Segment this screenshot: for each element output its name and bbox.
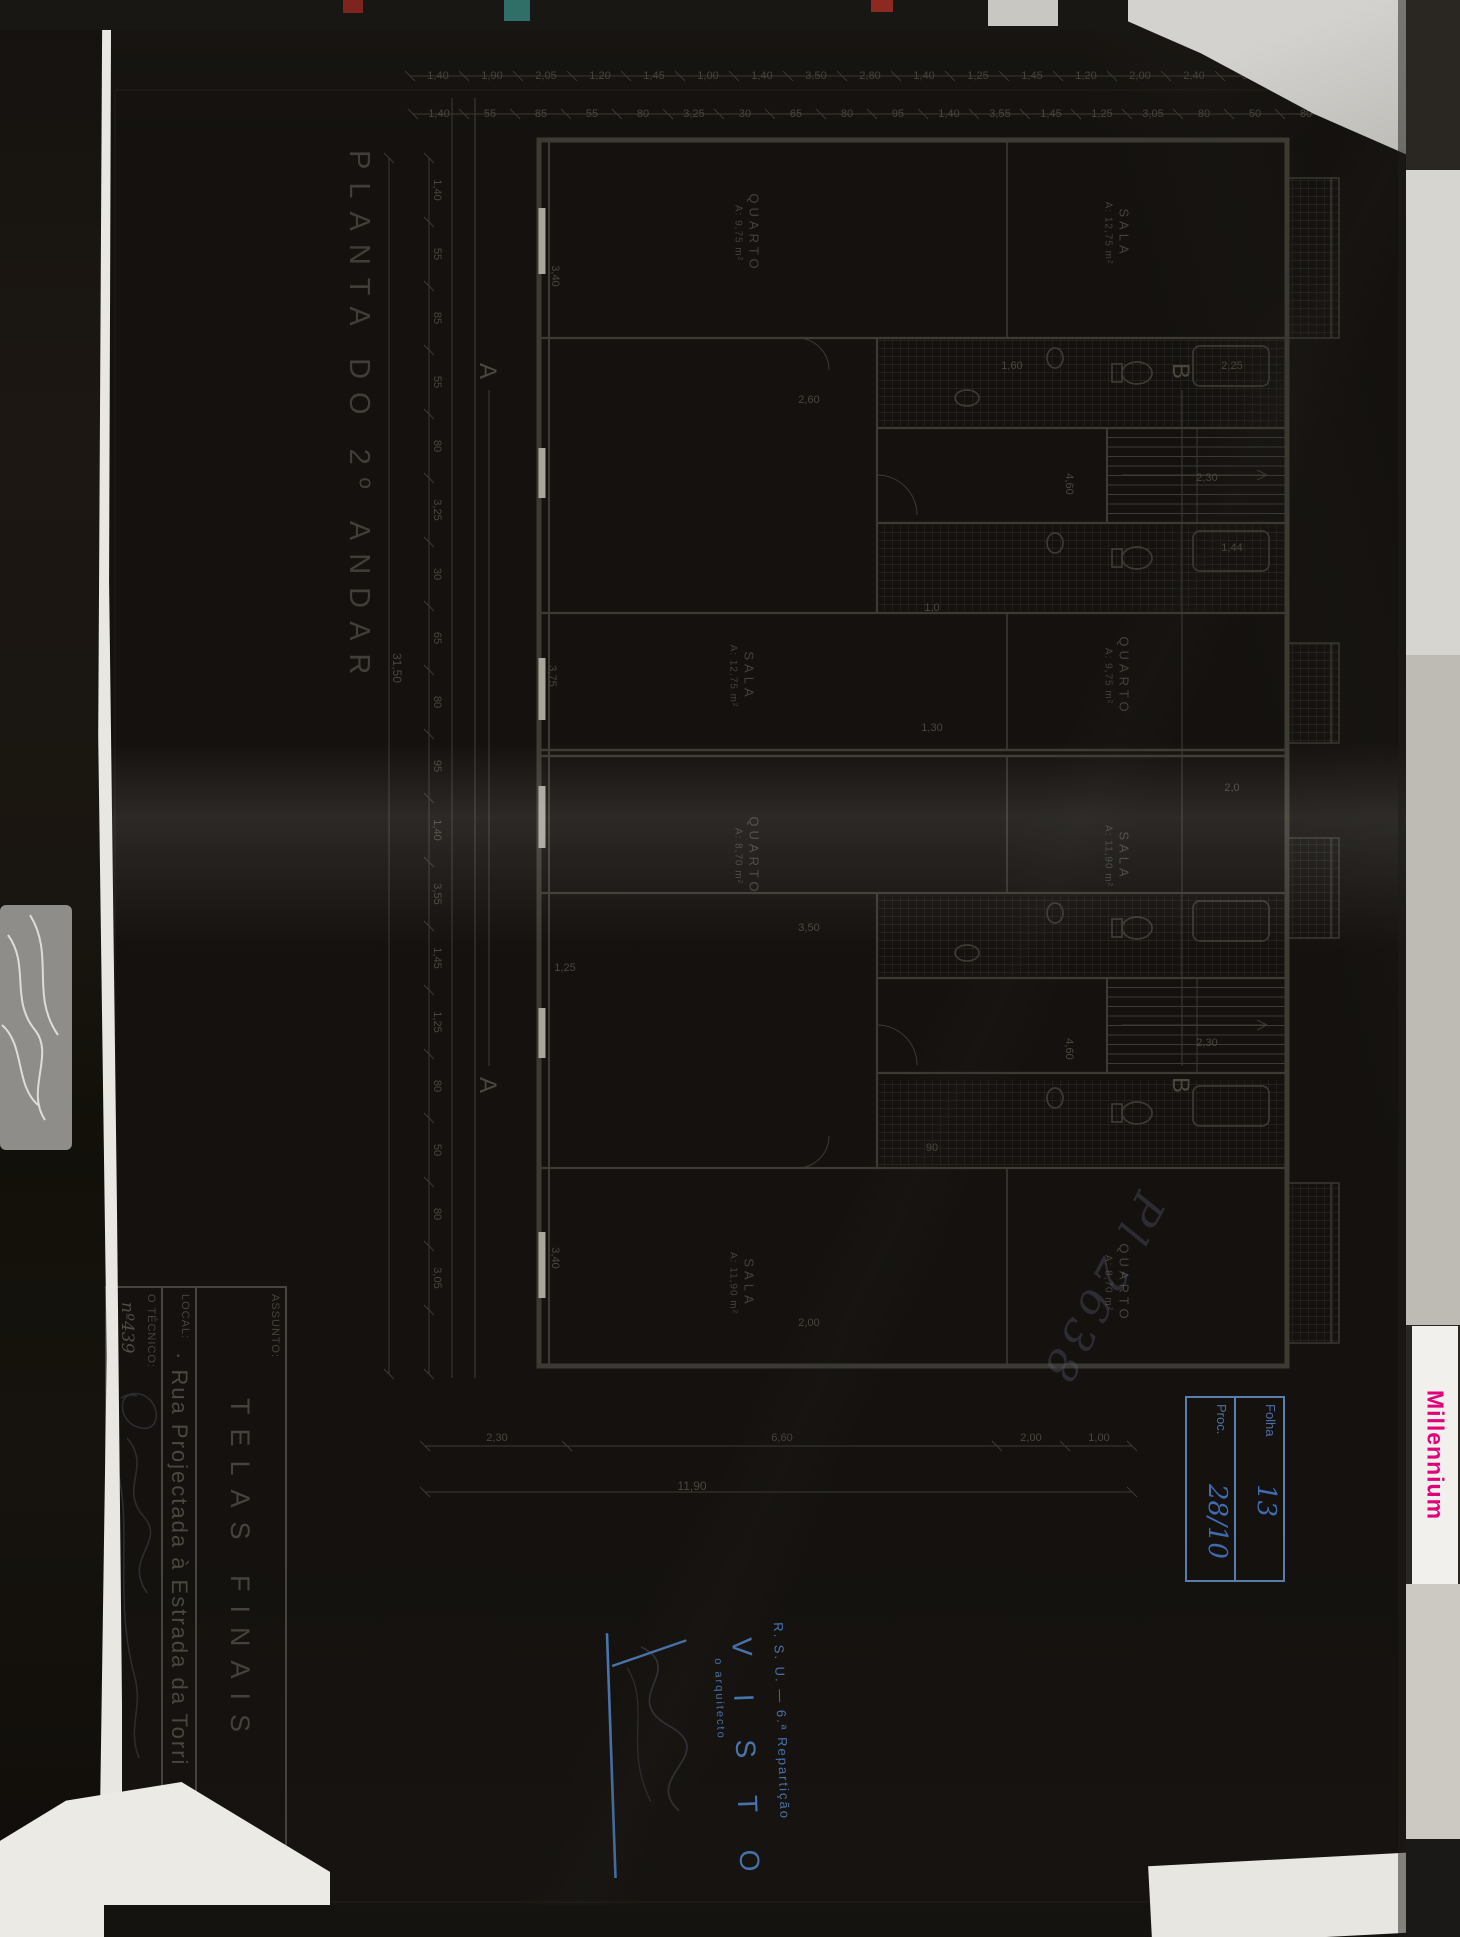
dimension-text: 3,50 bbox=[805, 70, 826, 82]
stamp-signature bbox=[591, 1625, 721, 1909]
folha-label: Folha bbox=[1263, 1404, 1278, 1437]
dimension-text: 1,25 bbox=[967, 70, 988, 82]
dimension-text: 2,40 bbox=[1183, 70, 1204, 82]
dimension-text: 2,05 bbox=[535, 70, 556, 82]
folha-row: Folha 13 bbox=[1236, 1398, 1283, 1580]
room-label: SALAA: 11,90 m² bbox=[1103, 825, 1132, 887]
dimension-text: 80 bbox=[841, 108, 853, 120]
dimension-text: 2,30 bbox=[1196, 1037, 1217, 1049]
proc-value: 28/10 bbox=[1202, 1484, 1232, 1559]
dimension-text: 4,60 bbox=[1063, 473, 1075, 494]
dimension-text: 2,30 bbox=[486, 1432, 507, 1444]
title-block: ASSUNTO: TELAS FINAIS PL LOCAL: · Rua Pr… bbox=[105, 1286, 287, 1930]
dimension-text: 1,0 bbox=[924, 602, 939, 614]
dimension-text: 80 bbox=[431, 1080, 443, 1092]
dimension-text: 1,25 bbox=[1091, 108, 1112, 120]
blueprint-sheet: PLANTA DO 2º ANDAR 1,251,40952,402,001,2… bbox=[107, 28, 1437, 1908]
dimension-text: 2,25 bbox=[1221, 360, 1242, 372]
dimension-text: 1,60 bbox=[1001, 360, 1022, 372]
dimension-text: 1,40 bbox=[427, 70, 448, 82]
dimension-text: 1,00 bbox=[1088, 1432, 1109, 1444]
dimension-text: 55 bbox=[431, 376, 443, 388]
dimension-text: 30 bbox=[739, 108, 751, 120]
dimension-text: 11,90 bbox=[677, 1479, 706, 1493]
room-label: QUARTOA: 9,75 m² bbox=[1103, 636, 1132, 715]
dimension-text: 1,40 bbox=[938, 108, 959, 120]
dimension-text: 65 bbox=[431, 632, 443, 644]
dimension-text: 3,50 bbox=[798, 922, 819, 934]
technician-signature bbox=[109, 1378, 161, 1798]
dimension-text: 80 bbox=[431, 1208, 443, 1220]
dimension-text: A bbox=[473, 363, 501, 379]
dimension-text: 3,05 bbox=[1142, 108, 1163, 120]
proc-label: Proc. bbox=[1214, 1404, 1229, 1434]
dimension-text: 3,55 bbox=[431, 883, 443, 904]
red-object-top-2 bbox=[871, 0, 893, 12]
dimension-text: 1,90 bbox=[481, 70, 502, 82]
local-value: · Rua Projectada à Estrada da Torri bbox=[166, 1352, 192, 1766]
dimension-text: 80 bbox=[431, 440, 443, 452]
assunto-label: ASSUNTO: bbox=[269, 1294, 281, 1358]
fabric-texture bbox=[0, 905, 72, 1150]
room-label: SALAA: 12,75 m² bbox=[728, 645, 757, 708]
tecnico-number: nº439 bbox=[117, 1302, 137, 1353]
dimension-text: 2,00 bbox=[798, 1317, 819, 1329]
dimension-text: 2,80 bbox=[859, 70, 880, 82]
dimension-text: 85 bbox=[535, 108, 547, 120]
dimension-text: 4,60 bbox=[1063, 1038, 1075, 1059]
sheet-code-cell: PL bbox=[197, 1850, 285, 1928]
photo-of-blueprint: PLANTA DO 2º ANDAR 1,251,40952,402,001,2… bbox=[0, 0, 1460, 1937]
dimension-text: 65 bbox=[790, 108, 802, 120]
title-block-row-tecnico: O TÉCNICO: nº439 bbox=[109, 1288, 161, 1928]
approval-stamp: R. S. U. — 6.ª Repartição V I S T O o ar… bbox=[546, 1622, 796, 1930]
dimension-text: 3,40 bbox=[549, 265, 561, 286]
dimension-text: 3,40 bbox=[549, 1247, 561, 1268]
dimension-text: 3,25 bbox=[431, 499, 443, 520]
dimension-text: 50 bbox=[1249, 108, 1261, 120]
white-scrap-top bbox=[988, 0, 1058, 26]
dimension-text: 90 bbox=[926, 1142, 938, 1154]
dimension-text: 2,00 bbox=[1129, 70, 1150, 82]
dimension-text: 1,44 bbox=[1221, 542, 1242, 554]
dimension-text: 95 bbox=[431, 760, 443, 772]
folha-proc-box: Folha 13 Proc. 28/10 bbox=[1185, 1396, 1285, 1582]
dimension-text: 55 bbox=[431, 248, 443, 260]
title-block-row-local: LOCAL: · Rua Projectada à Estrada da Tor… bbox=[161, 1288, 195, 1928]
title-block-row-assunto: ASSUNTO: TELAS FINAIS PL bbox=[195, 1288, 285, 1928]
fabric-object bbox=[0, 905, 72, 1150]
dimension-text: 80 bbox=[1198, 108, 1210, 120]
dimension-text: 3,25 bbox=[683, 108, 704, 120]
dimension-text: 1,25 bbox=[554, 962, 575, 974]
dimension-text: B bbox=[1166, 363, 1194, 379]
dimension-text: 1,40 bbox=[913, 70, 934, 82]
tecnico-label: O TÉCNICO: bbox=[145, 1294, 157, 1368]
dimension-text: 31,50 bbox=[390, 653, 404, 683]
assunto-value: TELAS FINAIS bbox=[224, 1398, 255, 1746]
proc-row: Proc. 28/10 bbox=[1187, 1398, 1236, 1580]
dark-top-edge bbox=[0, 0, 1460, 30]
dimension-text: 1,00 bbox=[697, 70, 718, 82]
dimension-text: 85 bbox=[431, 312, 443, 324]
dimension-text: 1,45 bbox=[643, 70, 664, 82]
room-label: SALAA: 11,90 m² bbox=[728, 1252, 757, 1314]
dimension-text: 1,20 bbox=[589, 70, 610, 82]
local-label: LOCAL: bbox=[179, 1294, 191, 1339]
room-label: QUARTOA: 9,75 m² bbox=[733, 193, 762, 272]
folha-value: 13 bbox=[1251, 1484, 1281, 1517]
dimension-text: 1,30 bbox=[921, 722, 942, 734]
dimension-text: 50 bbox=[431, 1144, 443, 1156]
teal-object-top bbox=[504, 0, 530, 21]
dimension-text: 55 bbox=[586, 108, 598, 120]
dimension-text: 2,60 bbox=[798, 394, 819, 406]
dimension-text: B bbox=[1166, 1077, 1194, 1093]
dimension-text: 80 bbox=[1300, 108, 1312, 120]
room-label: SALAA: 12,75 m² bbox=[1103, 202, 1132, 265]
dimension-text: 80 bbox=[637, 108, 649, 120]
red-object-top bbox=[343, 0, 363, 13]
sheet-code: PL bbox=[225, 1868, 259, 1911]
dimension-text: 1,40 bbox=[428, 108, 449, 120]
dimension-text: 1,25 bbox=[1345, 70, 1366, 82]
dimension-text: 1,45 bbox=[431, 947, 443, 968]
dimension-text: 1,40 bbox=[431, 819, 443, 840]
plan-title: PLANTA DO 2º ANDAR bbox=[342, 150, 375, 687]
dimension-text: 1,40 bbox=[1291, 70, 1312, 82]
dimension-text: 3,55 bbox=[989, 108, 1010, 120]
dimension-text: 95 bbox=[892, 108, 904, 120]
dark-table-edge bbox=[0, 0, 104, 1937]
dimension-text: 80 bbox=[431, 696, 443, 708]
dimension-text: 1,20 bbox=[1075, 70, 1096, 82]
dimension-text: 2,30 bbox=[1196, 472, 1217, 484]
dimension-text: 1,45 bbox=[1021, 70, 1042, 82]
dimension-text: 55 bbox=[1351, 108, 1363, 120]
dimension-text: 6,60 bbox=[771, 1432, 792, 1444]
dimension-text: 1,40 bbox=[431, 179, 443, 200]
dimension-text: 1,45 bbox=[1040, 108, 1061, 120]
dimension-text: 2,0 bbox=[1224, 782, 1239, 794]
dimension-text: 55 bbox=[484, 108, 496, 120]
dimension-text: A bbox=[473, 1077, 501, 1093]
dimension-text: 30 bbox=[431, 568, 443, 580]
dimension-text: 95 bbox=[1242, 70, 1254, 82]
dimension-text: 3,05 bbox=[431, 1267, 443, 1288]
dimension-text: 3,75 bbox=[546, 665, 558, 686]
dimension-text: 1,25 bbox=[431, 1011, 443, 1032]
dimension-text: 1,40 bbox=[751, 70, 772, 82]
room-label: QUARTOA: 8,70 m² bbox=[733, 816, 762, 895]
